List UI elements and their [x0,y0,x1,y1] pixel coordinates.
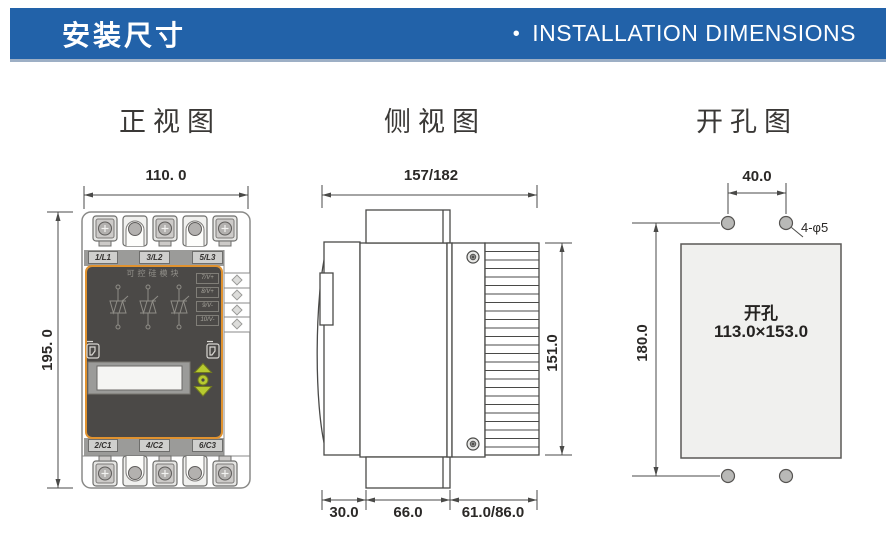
bullet-icon: • [513,24,521,44]
front-bottom-terminals [93,456,237,486]
page-root: 安装尺寸 • INSTALLATION DIMENSIONS 正视图 侧视图 开… [0,0,896,538]
hole-spacing-dim-text: 40.0 [717,168,797,186]
cutout-label-line1: 开孔 [691,305,831,323]
terminal-label-5L3: 5/L3 [192,251,223,264]
front-view-title: 正视图 [100,100,240,139]
cutout-rect [681,244,841,458]
front-view-drawing [40,160,260,505]
lcd-display [88,362,190,394]
page-title-en-text: INSTALLATION DIMENSIONS [532,20,856,47]
panel-title-text: 可控硅模块 [104,268,204,279]
gate-label-10V: 10/V- [196,315,219,326]
terminal-label-1L1: 1/L1 [88,251,118,264]
header-banner: 安装尺寸 • INSTALLATION DIMENSIONS [10,8,886,62]
front-height-dim-text: 195. 0 [39,310,57,390]
hole-spacing-dimension [728,183,786,214]
gate-label-7V: 7/V+ [196,273,219,284]
terminal-label-4C2: 4/C2 [139,439,170,452]
gate-label-9V: 9/V- [196,301,219,312]
side-bottom-dim-61-86: 61.0/86.0 [443,504,543,522]
front-width-dimension [84,186,248,209]
gate-label-8V: 8/V+ [196,287,219,298]
terminal-label-6C3: 6/C3 [192,439,223,452]
cutout-label-line2: 113.0×153.0 [691,323,831,341]
side-view-title: 侧视图 [365,100,505,139]
side-width-dimension [322,185,537,208]
terminal-label-2C1: 2/C1 [88,439,118,452]
front-gate-terminal-cells [224,273,250,332]
cutout-height-dim-text: 180.0 [634,303,652,383]
side-height-dim-text: 151.0 [544,313,562,393]
hole-spec-text: 4-φ5 [801,220,871,235]
terminal-label-3L2: 3/L2 [139,251,170,264]
side-view-drawing [300,160,580,530]
side-bottom-dim-30: 30.0 [314,504,374,522]
page-title-en: • INSTALLATION DIMENSIONS [513,20,886,47]
side-width-dim-text: 157/182 [381,167,481,185]
front-width-dim-text: 110. 0 [106,167,226,185]
page-title-zh: 安装尺寸 [10,14,186,54]
cutout-view-drawing [620,160,890,530]
cutout-view-title: 开孔图 [677,100,817,139]
side-bottom-dim-66: 66.0 [378,504,438,522]
front-top-terminals [93,216,237,246]
